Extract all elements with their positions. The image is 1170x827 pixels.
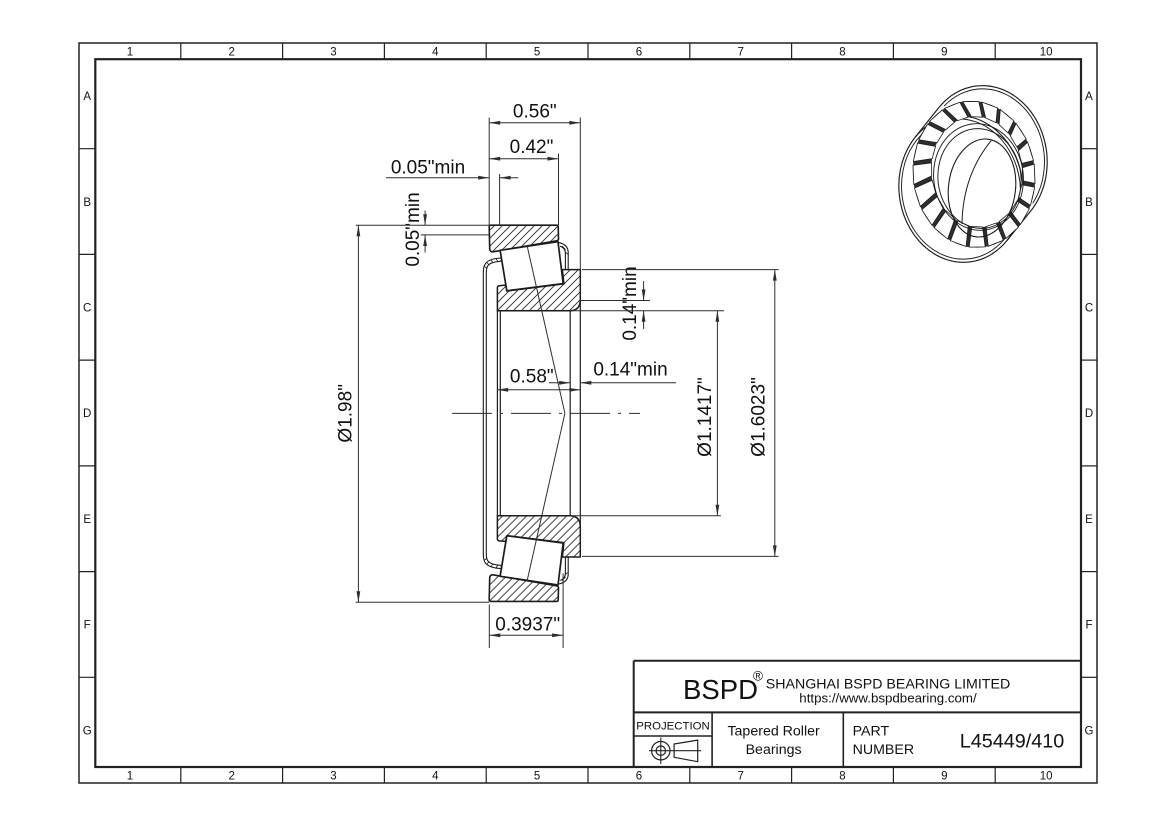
svg-text:4: 4 — [432, 771, 439, 783]
svg-text:A: A — [1085, 91, 1093, 103]
svg-text:0.56": 0.56" — [513, 102, 557, 123]
svg-text:BSPD: BSPD — [683, 674, 758, 705]
svg-text:Ø1.6023": Ø1.6023" — [749, 377, 770, 457]
svg-text:Bearings: Bearings — [746, 742, 802, 758]
svg-text:NUMBER: NUMBER — [853, 742, 914, 758]
svg-text:1: 1 — [127, 771, 133, 783]
svg-text:0.05"min: 0.05"min — [391, 157, 465, 178]
svg-text:1: 1 — [127, 47, 133, 59]
svg-text:0.58": 0.58" — [510, 367, 554, 388]
svg-text:®: ® — [753, 669, 763, 684]
svg-text:9: 9 — [941, 771, 947, 783]
svg-text:2: 2 — [228, 47, 234, 59]
svg-text:7: 7 — [737, 47, 743, 59]
svg-text:F: F — [84, 620, 91, 632]
svg-text:PART: PART — [853, 724, 890, 740]
svg-text:C: C — [1085, 303, 1093, 315]
svg-text:3: 3 — [330, 47, 336, 59]
svg-text:Ø1.1417": Ø1.1417" — [695, 377, 716, 457]
svg-text:C: C — [83, 303, 91, 315]
svg-text:E: E — [83, 514, 91, 526]
svg-text:4: 4 — [432, 47, 439, 59]
svg-text:5: 5 — [534, 47, 540, 59]
svg-text:0.14"min: 0.14"min — [620, 266, 641, 340]
svg-text:B: B — [83, 197, 91, 209]
svg-text:0.42": 0.42" — [510, 137, 554, 158]
svg-text:B: B — [1085, 197, 1093, 209]
svg-text:8: 8 — [839, 47, 845, 59]
svg-text:10: 10 — [1040, 771, 1053, 783]
svg-text:8: 8 — [839, 771, 845, 783]
svg-text:E: E — [1085, 514, 1093, 526]
svg-text:Tapered Roller: Tapered Roller — [727, 724, 820, 740]
svg-text:D: D — [1085, 408, 1093, 420]
svg-text:F: F — [1085, 620, 1092, 632]
svg-text:Ø1.98": Ø1.98" — [336, 384, 357, 443]
svg-text:10: 10 — [1040, 47, 1053, 59]
svg-text:G: G — [1085, 725, 1094, 737]
svg-text:L45449/410: L45449/410 — [960, 731, 1065, 753]
svg-text:7: 7 — [737, 771, 743, 783]
svg-text:0.14"min: 0.14"min — [593, 360, 667, 381]
svg-text:A: A — [83, 91, 91, 103]
svg-text:G: G — [83, 725, 92, 737]
svg-text:0.05"min: 0.05"min — [403, 192, 424, 266]
svg-text:6: 6 — [636, 771, 642, 783]
svg-text:6: 6 — [636, 47, 642, 59]
svg-text:0.3937": 0.3937" — [495, 615, 560, 636]
svg-text:9: 9 — [941, 47, 947, 59]
svg-text:https://www.bspdbearing.com/: https://www.bspdbearing.com/ — [799, 691, 977, 706]
svg-text:D: D — [83, 408, 91, 420]
svg-text:2: 2 — [228, 771, 234, 783]
svg-text:5: 5 — [534, 771, 540, 783]
svg-text:PROJECTION: PROJECTION — [636, 721, 709, 733]
svg-text:3: 3 — [330, 771, 336, 783]
